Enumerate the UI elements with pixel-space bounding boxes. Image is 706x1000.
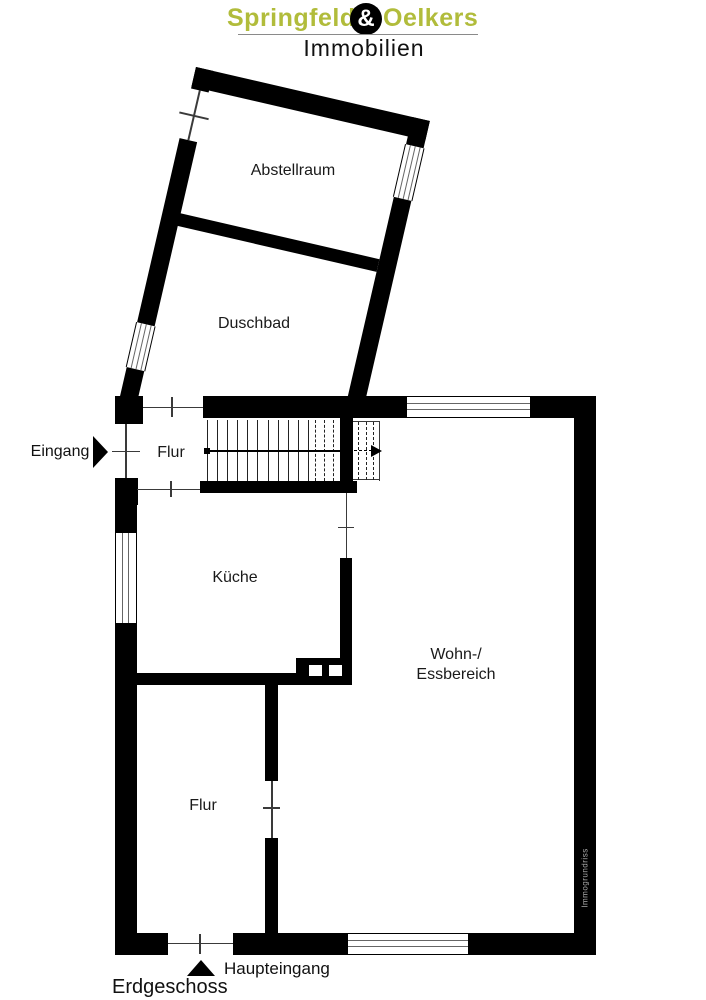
brand-name-left: Springfeld [227, 4, 356, 33]
brand-subtitle: Immobilien [303, 35, 424, 62]
stair-walkline-dashed [354, 450, 372, 451]
floor-label: Erdgeschoss [112, 976, 228, 999]
kueche-right-wall [340, 558, 352, 673]
room-label-wohn-line1: Wohn-/ [416, 645, 495, 665]
window-pane-line [122, 533, 123, 623]
flur-kueche-door-line [137, 489, 200, 491]
chimney-flue [309, 665, 322, 676]
window-top [407, 396, 530, 418]
annex-wing [120, 67, 430, 450]
lower-door-tick [263, 807, 280, 809]
window-pane-line [407, 403, 530, 404]
side-entrance-tick [112, 451, 140, 453]
wall-block [115, 478, 138, 505]
window-pane-line [348, 946, 468, 947]
stair-bottom-wall [200, 481, 357, 493]
brand-ampersand-circle: & [350, 3, 382, 35]
room-label-abstellraum: Abstellraum [251, 162, 335, 180]
kueche-door-line [346, 493, 348, 558]
main-entrance-arrow-icon [187, 960, 215, 976]
flur-kueche-door-tick [170, 481, 172, 497]
window-pane-line [128, 533, 129, 623]
window-pane-line [348, 940, 468, 941]
window-pane-line [140, 325, 152, 370]
room-label-wohnbereich: Wohn-/ Essbereich [416, 645, 495, 685]
lower-partition-upper [265, 685, 278, 781]
brand-logo: Springfeld & Oelkers Immobilien [0, 0, 706, 60]
lower-door-line [271, 781, 273, 838]
room-label-kueche: Küche [212, 569, 257, 587]
stair-tread-dashed [366, 422, 367, 480]
main-entrance-opening [168, 933, 233, 955]
kueche-door-tick [338, 527, 354, 529]
watermark-label: Immogrundriss [581, 848, 590, 907]
window-bottom [348, 933, 468, 955]
stair-direction-arrow-icon [371, 445, 382, 457]
room-label-wohn-line2: Essbereich [416, 665, 495, 685]
chimney-flue [329, 665, 342, 676]
main-entrance-line [168, 943, 233, 945]
kueche-bottom-wall [130, 673, 306, 685]
annex-top-wall [192, 67, 430, 140]
stair-tread-dashed [358, 422, 359, 480]
annex-divider-wall [176, 213, 380, 272]
brand-name-right: Oelkers [383, 4, 478, 33]
side-entrance-label: Eingang [31, 443, 90, 461]
brand-ampersand: & [357, 5, 374, 33]
annex-window-left [126, 322, 156, 371]
room-label-flur-lower: Flur [189, 797, 217, 815]
annex-passage-tick [171, 397, 173, 417]
main-entrance-label: Haupteingang [224, 959, 330, 979]
window-pane-line [407, 409, 530, 410]
lower-partition-lower [265, 838, 278, 938]
floorplan-canvas: Springfeld & Oelkers Immobilien [0, 0, 706, 1000]
side-entrance-arrow-icon [93, 436, 108, 468]
room-label-duschbad: Duschbad [218, 315, 290, 333]
annex-window-right [393, 144, 425, 201]
main-entrance-tick [199, 934, 201, 954]
annex-passage-line [143, 407, 203, 409]
stair-walkline [207, 450, 345, 452]
corner-block [115, 396, 143, 424]
room-label-flur-upper: Flur [157, 444, 185, 462]
window-left [115, 533, 137, 623]
